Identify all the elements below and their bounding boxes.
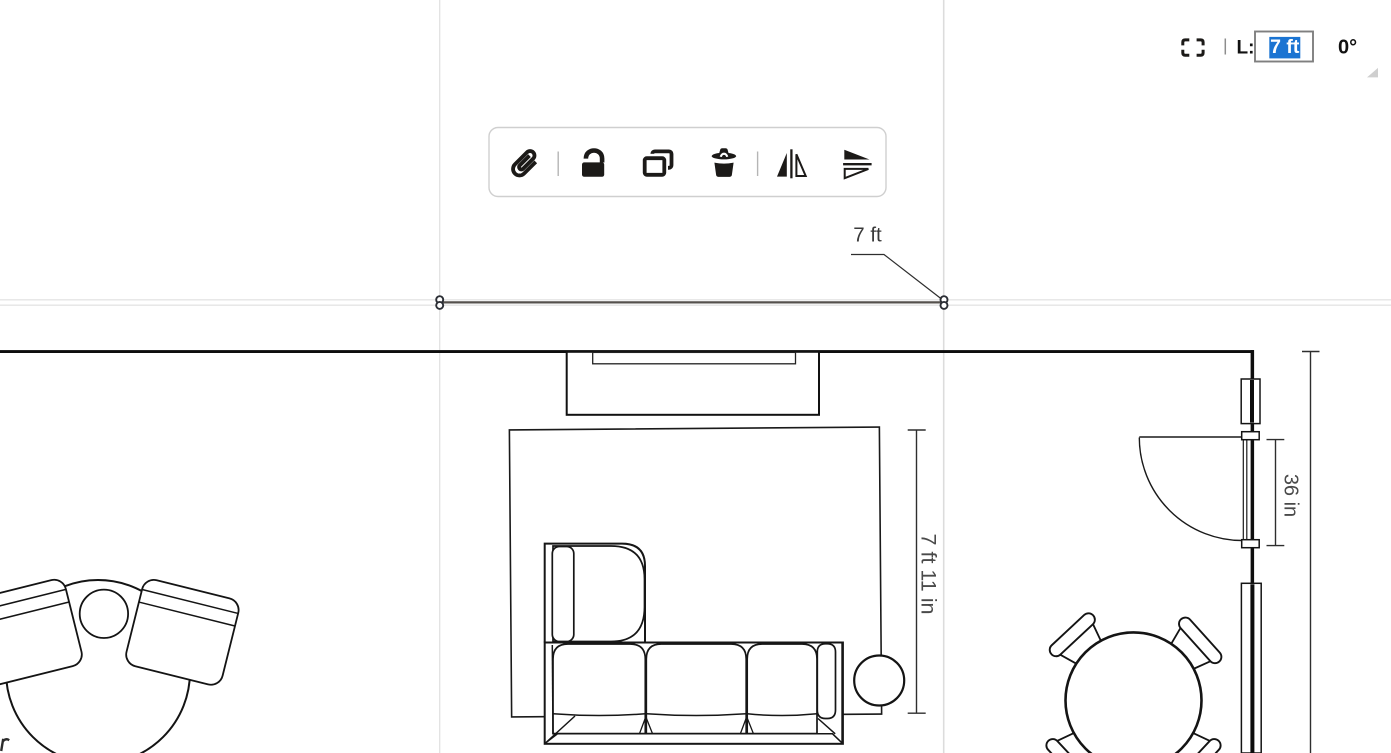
- svg-text:0°: 0°: [1338, 37, 1357, 59]
- svg-text:7 ft: 7 ft: [853, 223, 882, 246]
- svg-text:7 ft 11 in: 7 ft 11 in: [917, 534, 941, 615]
- svg-text:36 in: 36 in: [1280, 474, 1302, 517]
- svg-text:L:: L:: [1237, 38, 1255, 59]
- svg-text:7 ft: 7 ft: [1270, 36, 1300, 58]
